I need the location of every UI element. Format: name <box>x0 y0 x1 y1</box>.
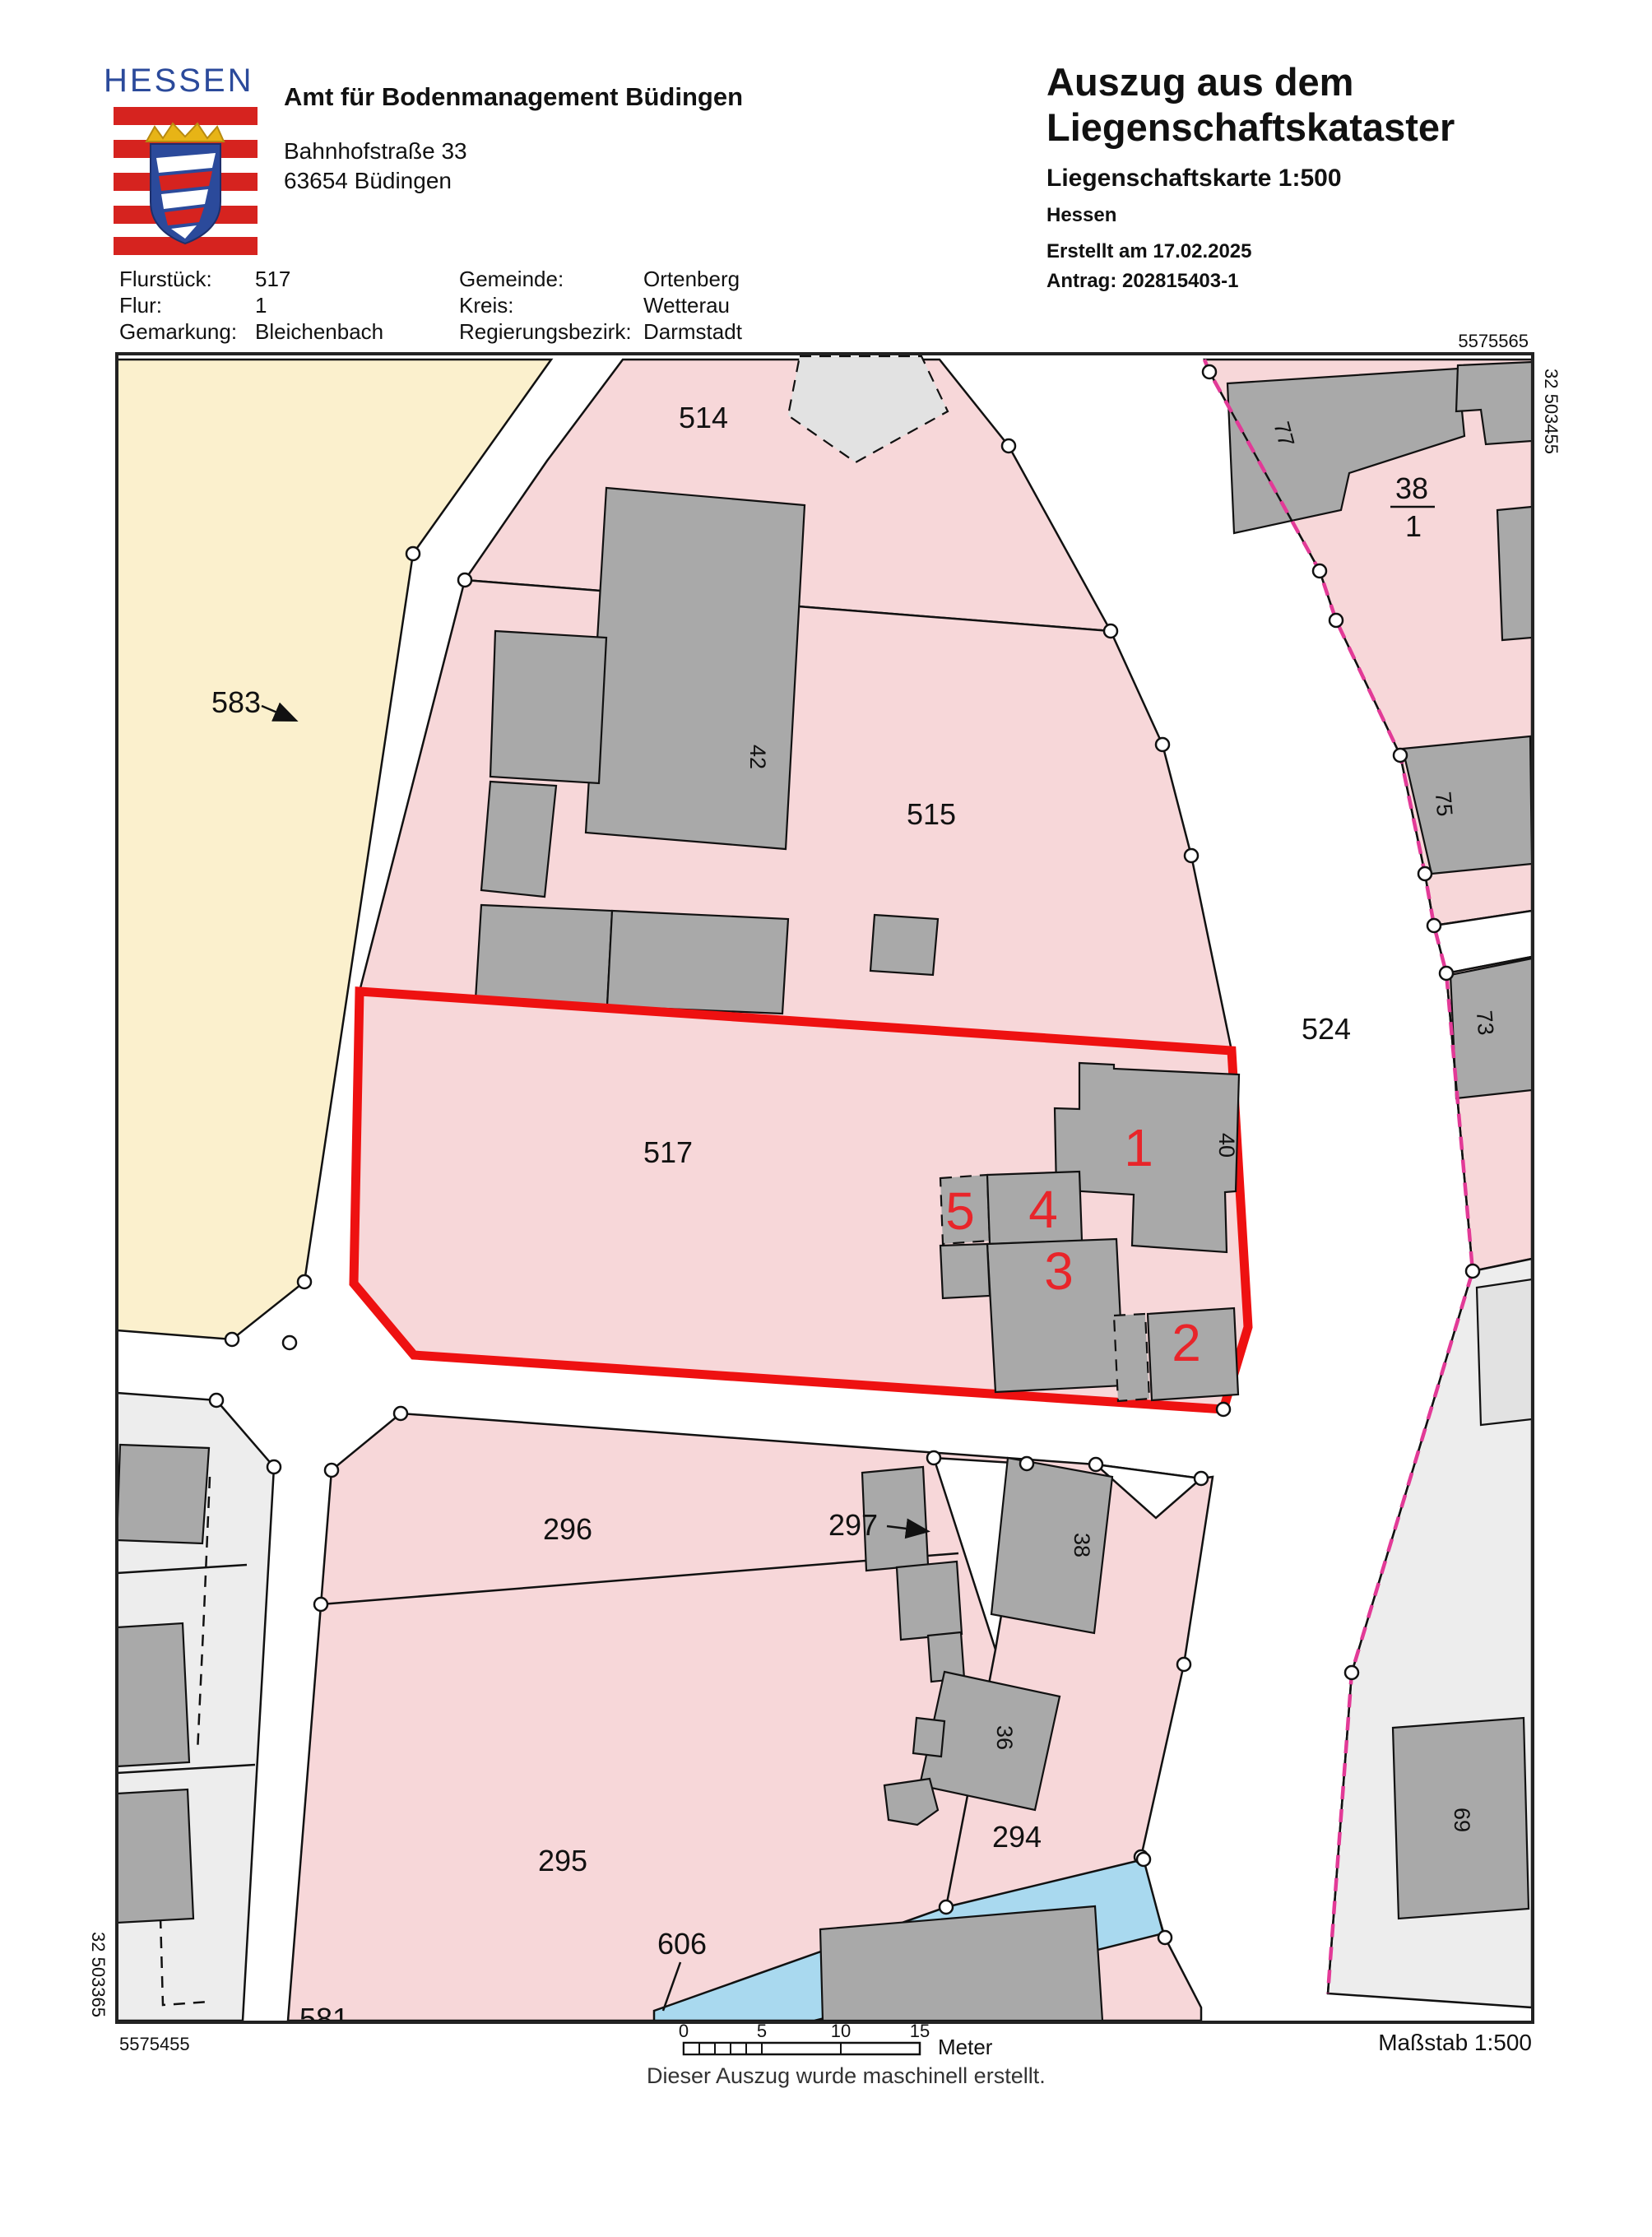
label-parcel-297: 297 <box>828 1508 878 1542</box>
mark-building-4: 4 <box>1028 1180 1058 1239</box>
scale-tick-10: 10 <box>831 2021 851 2041</box>
scale-tick-15: 15 <box>910 2021 930 2041</box>
house-number-36: 36 <box>992 1725 1017 1750</box>
label-parcel-606: 606 <box>657 1927 707 1961</box>
building-2-strip <box>1114 1314 1149 1401</box>
building-3-annex <box>940 1244 990 1298</box>
house-number-42: 42 <box>745 745 770 769</box>
cadastral-extract-page: HESSEN Amt für Bodenmanagement Büdingen … <box>0 0 1652 2237</box>
building-border-east <box>1497 507 1532 640</box>
label-parcel-517: 517 <box>643 1135 693 1169</box>
coord-east-vertical: 32 503455 <box>1541 369 1562 454</box>
building-sw-1 <box>117 1445 209 1543</box>
house-number-40: 40 <box>1214 1133 1239 1158</box>
mark-building-3: 3 <box>1044 1241 1074 1301</box>
label-parcel-515: 515 <box>907 797 956 831</box>
building-42 <box>586 488 805 849</box>
scale-text: Maßstab 1:500 <box>1378 2030 1532 2055</box>
label-parcel-514: 514 <box>679 401 728 434</box>
mark-building-1: 1 <box>1124 1118 1153 1177</box>
label-parcel-38-denominator: 1 <box>1405 509 1422 543</box>
building-42-annex-small <box>481 782 556 897</box>
machine-generated-note: Dieser Auszug wurde maschinell erstellt. <box>647 2063 1046 2088</box>
building-sw-2 <box>117 1623 189 1766</box>
label-parcel-581: 581 <box>299 2002 349 2035</box>
house-number-75: 75 <box>1431 791 1458 818</box>
building-row-east <box>607 911 788 1014</box>
building-36-bump <box>913 1718 944 1757</box>
coord-west-vertical: 32 503365 <box>88 1932 109 2017</box>
coord-northeast: 5575565 <box>1458 331 1529 351</box>
house-number-73: 73 <box>1472 1009 1499 1037</box>
scale-tick-5: 5 <box>757 2021 767 2041</box>
building-42-annex <box>490 631 606 783</box>
scale-unit: Meter <box>938 2035 993 2059</box>
label-parcel-524: 524 <box>1302 1012 1351 1046</box>
building-row-west <box>476 905 612 1005</box>
building-38-annex2 <box>897 1562 962 1640</box>
cadastral-map: 514 515 517 524 583 296 297 295 294 606 … <box>0 0 1652 2237</box>
house-number-38: 38 <box>1070 1533 1094 1557</box>
coord-southwest: 5575455 <box>119 2034 190 2054</box>
house-number-69: 69 <box>1450 1808 1474 1832</box>
label-parcel-295: 295 <box>538 1844 587 1877</box>
label-parcel-294: 294 <box>992 1820 1042 1854</box>
label-parcel-583: 583 <box>211 685 261 719</box>
label-parcel-38-numerator: 38 <box>1395 471 1428 505</box>
label-parcel-296: 296 <box>543 1512 592 1546</box>
building-square-515 <box>870 915 938 975</box>
scale-bar: 0 5 10 15 Meter <box>679 2021 993 2059</box>
building-sw-3 <box>117 1789 193 1923</box>
mark-building-5: 5 <box>945 1181 975 1241</box>
building-light-69-north <box>1477 1279 1532 1425</box>
scale-tick-0: 0 <box>679 2021 689 2041</box>
mark-building-2: 2 <box>1172 1313 1201 1372</box>
